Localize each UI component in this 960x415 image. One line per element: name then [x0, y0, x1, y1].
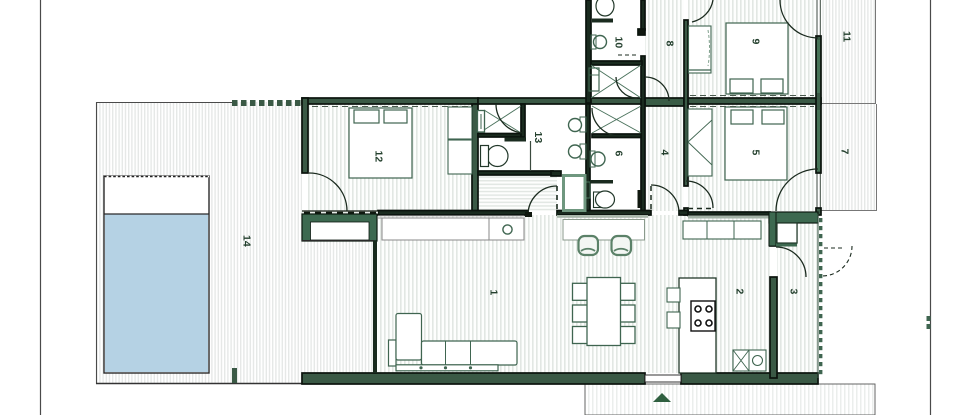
svg-text:5: 5	[750, 150, 762, 156]
svg-text:1: 1	[488, 290, 500, 296]
svg-text:11: 11	[841, 31, 853, 42]
svg-text:12: 12	[373, 151, 385, 163]
svg-text:9: 9	[750, 39, 762, 45]
svg-text:6: 6	[613, 151, 625, 157]
svg-text:7: 7	[839, 149, 851, 155]
svg-text:2: 2	[734, 289, 746, 295]
svg-text:10: 10	[613, 37, 625, 49]
svg-text:8: 8	[664, 41, 676, 47]
svg-text:13: 13	[532, 132, 544, 144]
svg-text:3: 3	[788, 289, 800, 295]
svg-text:4: 4	[659, 150, 671, 156]
svg-text:14: 14	[241, 235, 253, 247]
